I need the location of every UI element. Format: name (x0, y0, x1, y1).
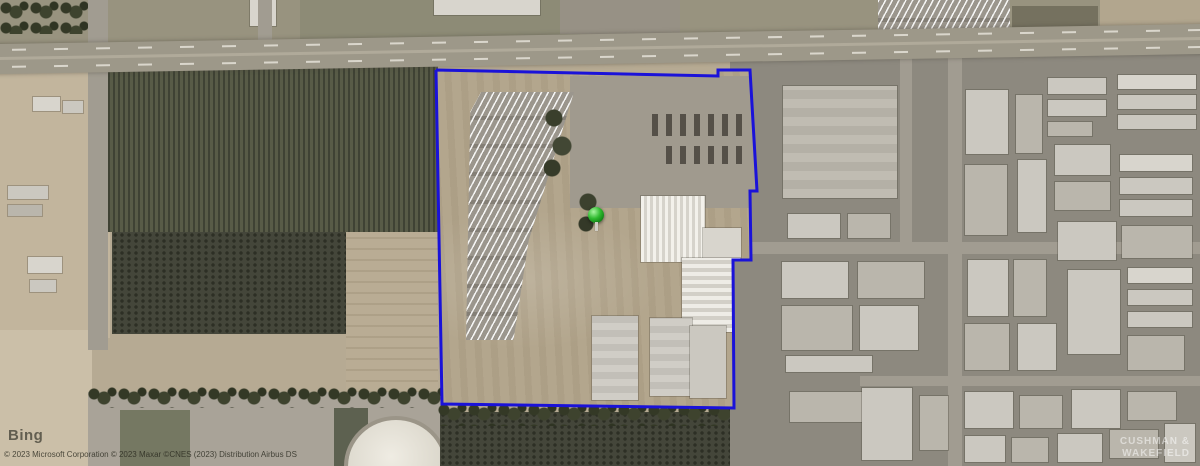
farm-field (346, 232, 438, 404)
warehouse-building (1072, 390, 1120, 428)
warehouse-building (1128, 312, 1192, 327)
warehouse-building (965, 436, 1005, 462)
warehouse-building (1014, 260, 1046, 316)
satellite-map-canvas[interactable]: Bing © 2023 Microsoft Corporation © 2023… (0, 0, 1200, 466)
warehouse-building (920, 396, 948, 450)
orchard-block (108, 56, 438, 232)
warehouse-building (1118, 95, 1196, 109)
tree-row (0, 0, 95, 34)
brand-watermark: CUSHMAN & WAKEFIELD (1120, 436, 1190, 460)
warehouse-building (1118, 115, 1196, 129)
warehouse-building (1118, 75, 1196, 89)
warehouse-building (1120, 155, 1192, 171)
farm-building (30, 280, 56, 292)
warehouse-building (1048, 122, 1092, 136)
street (900, 58, 912, 246)
warehouse-building (1128, 268, 1192, 283)
warehouse-building (1068, 270, 1120, 354)
farm-building (28, 257, 62, 273)
warehouse-building (1055, 145, 1110, 175)
bing-logo: Bing (8, 427, 43, 444)
warehouse-building (965, 324, 1009, 370)
warehouse-building (786, 356, 872, 372)
plant-building (690, 326, 726, 398)
warehouse-building (1128, 392, 1176, 420)
warehouse-building (1128, 290, 1192, 305)
map-marker-stem (595, 222, 598, 231)
subject-parcel-land (430, 62, 762, 412)
farm-building (8, 186, 48, 199)
warehouse-building (1120, 178, 1192, 194)
warehouse-building (1018, 160, 1046, 232)
warehouse-building (1018, 324, 1056, 370)
farm-building (33, 97, 60, 111)
warehouse-building (788, 214, 840, 238)
farm-field (0, 330, 92, 466)
orchard-block (112, 232, 346, 334)
warehouse-building (1048, 100, 1106, 116)
parcel-asphalt-yard (570, 76, 758, 208)
warehouse-building (1122, 226, 1192, 258)
warehouse-building (965, 165, 1007, 235)
tree-row (88, 386, 446, 408)
farm-building (8, 205, 42, 216)
warehouse-building (782, 306, 852, 350)
parked-trailers-dark (652, 114, 748, 136)
plant-building (650, 318, 692, 396)
plant-building (641, 196, 705, 262)
warehouse-building (790, 392, 866, 422)
warehouse-building (1048, 78, 1106, 94)
warehouse-building (1012, 438, 1048, 462)
warehouse-building (965, 392, 1013, 428)
brand-watermark-line2: WAKEFIELD (1120, 448, 1190, 460)
warehouse-building (782, 262, 848, 298)
plant-building (592, 316, 638, 400)
warehouse-building (1055, 182, 1110, 210)
warehouse-building (968, 260, 1008, 316)
warehouse-building (783, 86, 897, 198)
map-attribution: © 2023 Microsoft Corporation © 2023 Maxa… (4, 450, 297, 459)
parked-trailers-dark (666, 146, 744, 164)
brand-watermark-line1: CUSHMAN & (1120, 436, 1190, 448)
warehouse-building (848, 214, 890, 238)
map-marker[interactable] (588, 207, 604, 223)
tree-cluster (544, 106, 574, 182)
warehouse-building (1020, 396, 1062, 428)
warehouse-building (1128, 336, 1184, 370)
warehouse-building (1058, 434, 1102, 462)
warehouse-building (858, 262, 924, 298)
warehouse-building (966, 90, 1008, 154)
warehouse-building (860, 306, 918, 350)
warehouse-building (862, 388, 912, 460)
farm-building (63, 101, 83, 113)
street (948, 58, 962, 466)
warehouse-building (1016, 95, 1042, 153)
warehouse-building (1058, 222, 1116, 260)
warehouse-building (1120, 200, 1192, 216)
street (860, 376, 1200, 386)
terrain-top-lot (560, 0, 680, 34)
building (434, 0, 540, 15)
